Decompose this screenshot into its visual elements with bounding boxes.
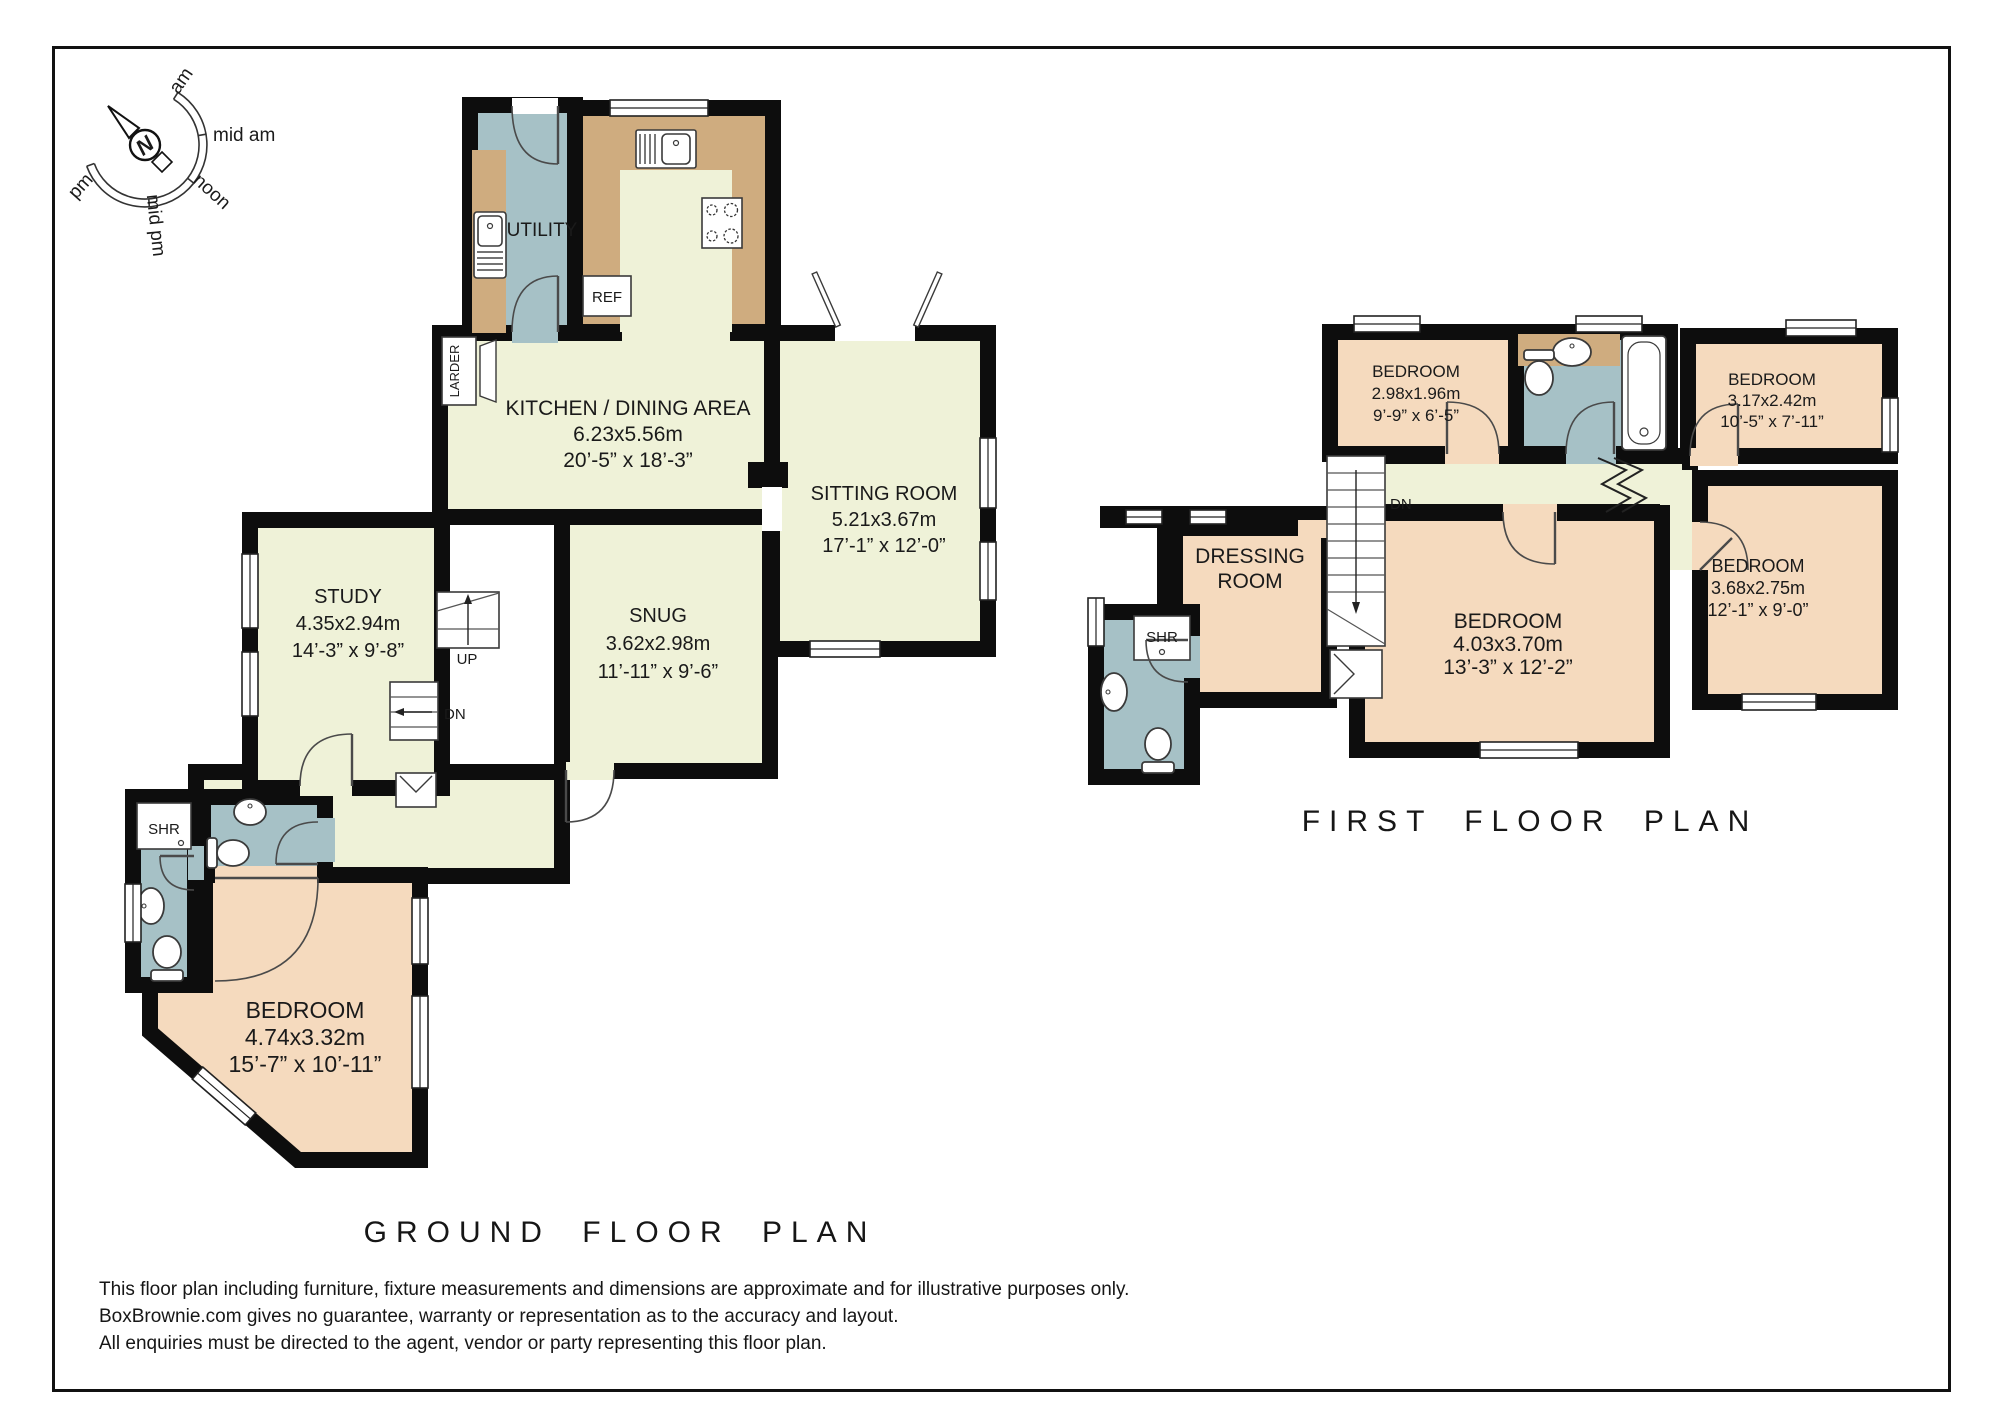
label-bedroom-ground-name: BEDROOM xyxy=(246,997,365,1023)
label-bedroom-right-name: BEDROOM xyxy=(1711,556,1804,576)
label-bedroom-top-right-name: BEDROOM xyxy=(1728,370,1816,389)
kitchen-floor xyxy=(620,170,732,332)
label-bedroom-top-right-imperial: 10’-5” x 7’-11” xyxy=(1720,412,1824,431)
label-bedroom-small-name: BEDROOM xyxy=(1372,362,1460,381)
label-study-metric: 4.35x2.94m xyxy=(296,613,401,635)
stairs-down-cellar xyxy=(390,682,438,740)
label-shr-ground: SHR xyxy=(148,821,180,838)
compass-rose: N am mid am noon mid pm pm xyxy=(64,64,275,257)
closet-ff xyxy=(1330,650,1382,698)
utility-sink xyxy=(474,212,506,278)
label-dn-ground: DN xyxy=(444,706,466,723)
label-bedroom-main-metric: 4.03x3.70m xyxy=(1453,633,1563,656)
wc-door-opening xyxy=(315,818,335,862)
label-dn-ff: DN xyxy=(1390,496,1412,513)
floor-plan-page: N am mid am noon mid pm pm xyxy=(0,0,2000,1414)
compass-label-am: am xyxy=(165,64,197,98)
label-snug-imperial: 11’-11” x 9’-6” xyxy=(598,661,718,683)
disclaimer-line-3: All enquiries must be directed to the ag… xyxy=(99,1330,1129,1357)
compass-label-mid-am: mid am xyxy=(213,125,275,146)
sitting-room-french-doors xyxy=(812,272,942,327)
shower-room-ff-basin xyxy=(1101,673,1127,711)
first-floor-title: FIRST FLOOR PLAN xyxy=(1210,805,1850,839)
wc-toilet xyxy=(207,838,249,868)
stairs-up xyxy=(437,592,499,648)
label-sitting-imperial: 17’-1” x 12’-0” xyxy=(822,535,945,557)
label-utility: UTILITY xyxy=(507,220,578,241)
kitchen-dining-passage xyxy=(622,316,730,350)
label-bedroom-right-imperial: 12’-1” x 9’-0” xyxy=(1707,600,1808,620)
label-study-name: STUDY xyxy=(314,586,382,608)
bathroom-toilet xyxy=(1524,350,1554,395)
label-snug-name: SNUG xyxy=(629,605,687,627)
stairs-down-ff xyxy=(1327,456,1385,646)
bathroom-door-opening xyxy=(1566,446,1616,464)
bathtub xyxy=(1622,336,1666,450)
dining-sitting-opening xyxy=(762,487,782,531)
shower-room-toilet xyxy=(151,936,183,981)
first-floor-plan: BEDROOM 2.98x1.96m 9’-9” x 6’-5” BEDROOM… xyxy=(1088,316,1898,777)
label-bedroom-main-imperial: 13’-3” x 12’-2” xyxy=(1443,656,1573,679)
label-up: UP xyxy=(457,651,478,668)
compass-label-noon: noon xyxy=(189,170,234,214)
shower-room-door-opening xyxy=(188,846,204,880)
label-kitchen-name: KITCHEN / DINING AREA xyxy=(505,397,750,420)
disclaimer: This floor plan including furniture, fix… xyxy=(99,1276,1129,1357)
utility-exterior-door-opening xyxy=(512,98,558,114)
bedroom-main-door-opening xyxy=(1503,504,1557,522)
label-shr-ff: SHR xyxy=(1146,629,1178,646)
label-sitting-name: SITTING ROOM xyxy=(811,483,958,505)
label-bedroom-top-right-metric: 3.17x2.42m xyxy=(1728,391,1817,410)
ground-floor-plan: UTILITY LARDER REF KITCHEN / DINING AREA… xyxy=(125,98,996,1160)
utility-kitchen-door-opening xyxy=(512,323,558,343)
ground-floor-title: GROUND FLOOR PLAN xyxy=(300,1216,940,1250)
wc-basin xyxy=(234,799,266,825)
label-bedroom-right-metric: 3.68x2.75m xyxy=(1711,578,1805,598)
label-bedroom-small-imperial: 9’-9” x 6’-5” xyxy=(1373,406,1459,425)
kitchen-sink xyxy=(636,130,696,168)
hall-closet xyxy=(396,773,436,807)
disclaimer-line-1: This floor plan including furniture, fix… xyxy=(99,1276,1129,1303)
shower-room-ff-toilet xyxy=(1142,728,1174,773)
disclaimer-line-2: BoxBrownie.com gives no guarantee, warra… xyxy=(99,1303,1129,1330)
label-snug-metric: 3.62x2.98m xyxy=(606,633,711,655)
label-bedroom-small-metric: 2.98x1.96m xyxy=(1372,384,1461,403)
label-bedroom-ground-imperial: 15’-7” x 10’-11” xyxy=(229,1051,382,1077)
bedroom-top-right-door-opening xyxy=(1690,448,1738,466)
label-ref: REF xyxy=(592,289,622,306)
floor-plan-drawing: N am mid am noon mid pm pm xyxy=(0,0,2000,1414)
label-dressing-line1: DRESSING xyxy=(1195,545,1305,568)
shower-room-basin xyxy=(138,888,164,924)
stove-cooktop xyxy=(702,198,742,248)
label-bedroom-main-name: BEDROOM xyxy=(1454,610,1563,633)
bathroom-basin xyxy=(1553,338,1591,366)
label-larder: LARDER xyxy=(447,345,462,398)
snug-door-opening xyxy=(566,762,614,780)
chimney-wall xyxy=(748,462,788,488)
label-study-imperial: 14’-3” x 9’-8” xyxy=(292,640,404,662)
label-bedroom-ground-metric: 4.74x3.32m xyxy=(245,1024,365,1050)
bedroom-small-door-opening xyxy=(1445,446,1499,464)
label-kitchen-metric: 6.23x5.56m xyxy=(573,423,683,446)
label-sitting-metric: 5.21x3.67m xyxy=(832,509,937,531)
label-kitchen-imperial: 20’-5” x 18’-3” xyxy=(563,449,693,472)
study-door-opening xyxy=(300,778,352,796)
compass-label-pm: pm xyxy=(64,169,97,203)
french-door-opening xyxy=(835,325,915,341)
label-dressing-line2: ROOM xyxy=(1217,570,1282,593)
